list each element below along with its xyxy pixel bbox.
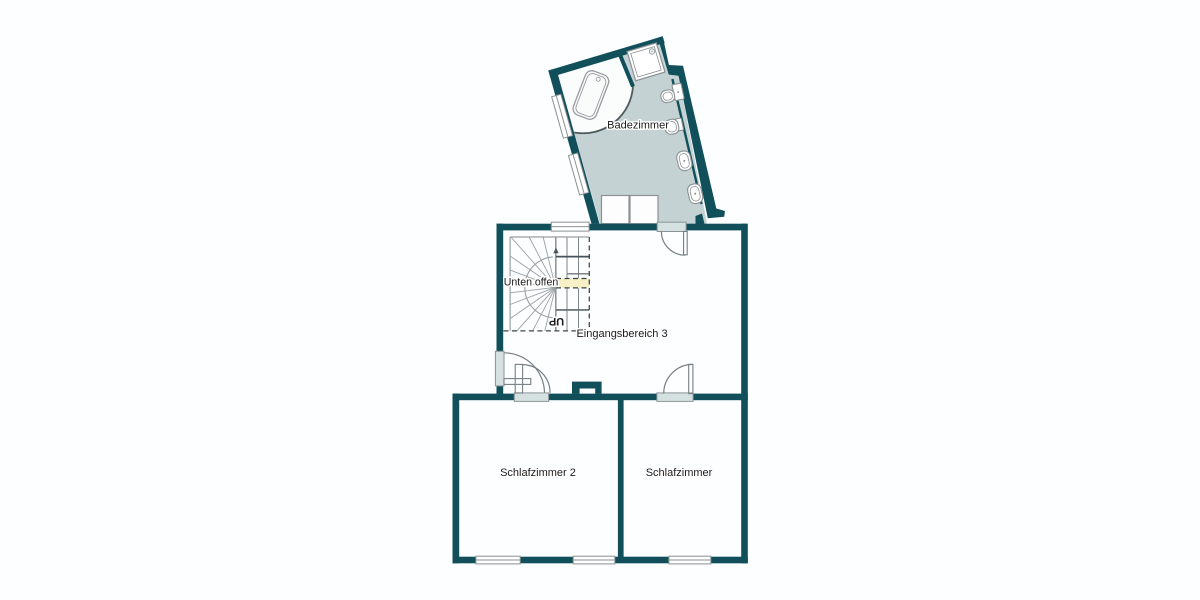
svg-text:Eingangsbereich 3: Eingangsbereich 3 [576, 328, 667, 340]
svg-text:Badezimmer: Badezimmer [607, 120, 669, 132]
svg-text:Schlafzimmer 2: Schlafzimmer 2 [500, 467, 576, 479]
svg-text:UP: UP [549, 315, 564, 327]
svg-text:Unten offen: Unten offen [504, 277, 559, 289]
svg-text:Schlafzimmer: Schlafzimmer [646, 467, 713, 479]
